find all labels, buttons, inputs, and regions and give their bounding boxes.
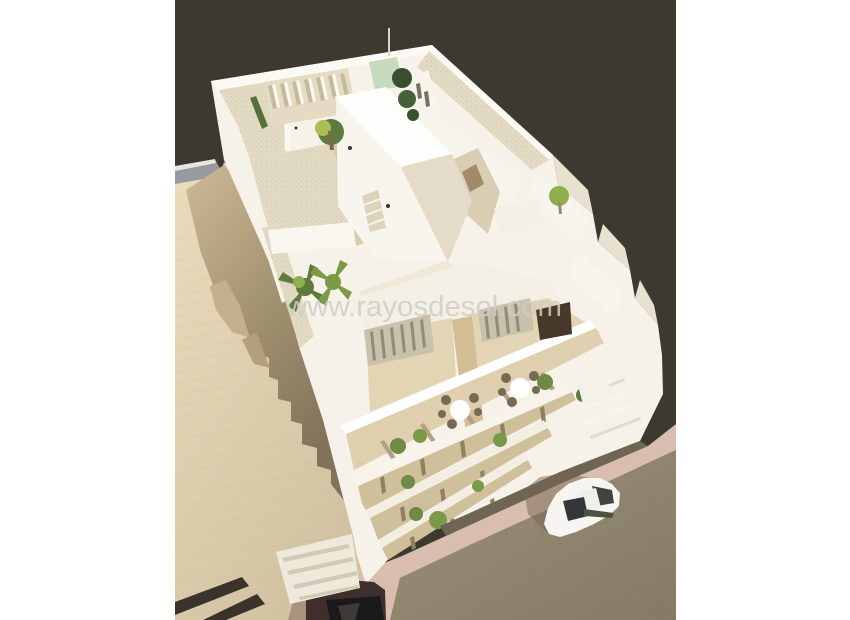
svg-text:www.rayosdesol.com: www.rayosdesol.com bbox=[285, 291, 562, 323]
